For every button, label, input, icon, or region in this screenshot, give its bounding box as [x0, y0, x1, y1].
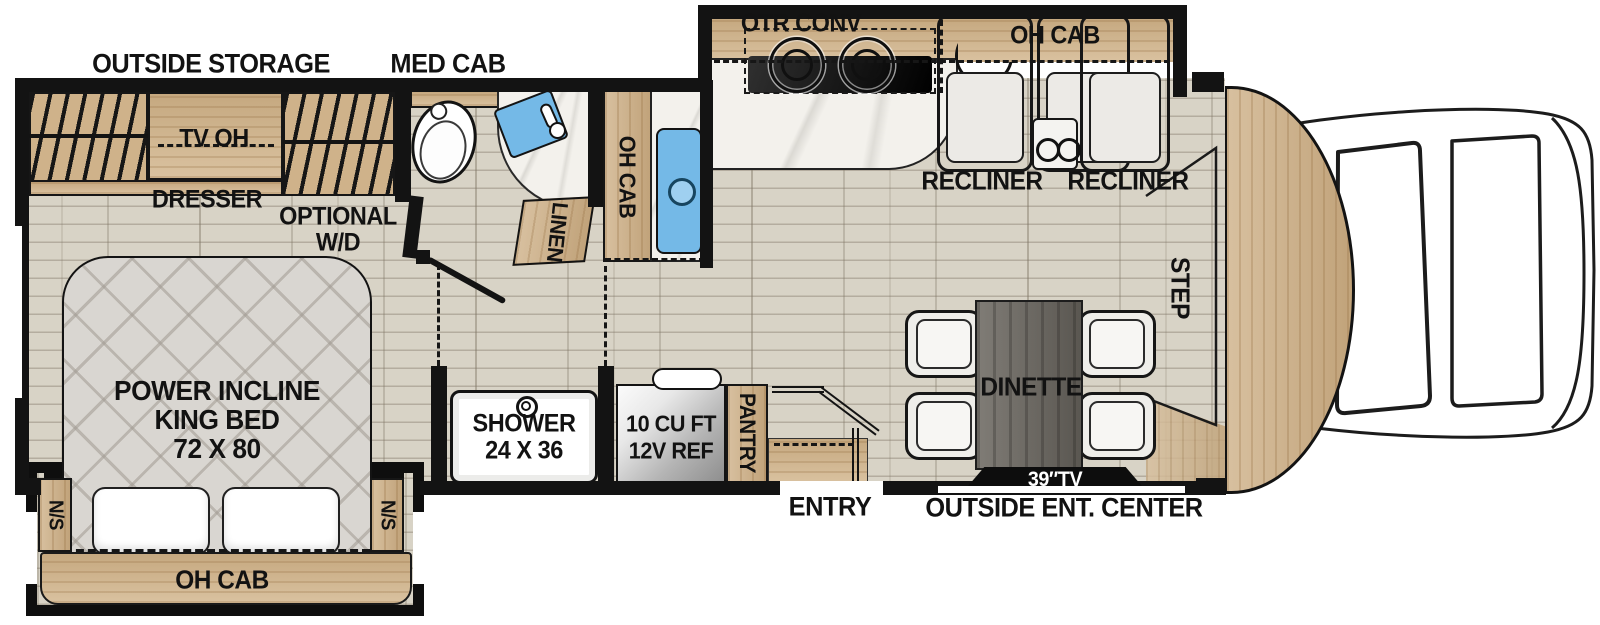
dinette-chair-3-cushion [1089, 319, 1145, 369]
wardrobe-wd-rod [283, 140, 395, 144]
label-dresser: DRESSER [152, 186, 262, 215]
label-bed-line3: 72 X 80 [173, 433, 260, 465]
wall-bottom-left-stub [15, 478, 41, 495]
dinette-chair-3 [1078, 310, 1156, 378]
dinette-chair-4-cushion [1089, 401, 1145, 451]
label-outside-storage: OUTSIDE STORAGE [92, 49, 330, 80]
windshield-right-pane [1452, 136, 1542, 406]
wall-galley-left [698, 5, 712, 92]
entry-step-dash [774, 443, 854, 446]
label-ns-right: N/S [376, 500, 399, 530]
wall-bath-left [395, 86, 411, 202]
dinette-chair-2-cushion [916, 401, 972, 451]
vanity-drain-icon [668, 178, 696, 206]
label-shower-line1: SHOWER [473, 410, 576, 439]
label-recliner-left: RECLINER [921, 166, 1042, 197]
label-wd: W/D [316, 229, 360, 258]
dinette-chair-2 [905, 392, 983, 460]
label-step: STEP [1165, 257, 1196, 319]
slide-latch-right [368, 468, 404, 478]
wardrobe-left-rod [29, 134, 148, 138]
slideout-window-left [26, 512, 37, 584]
bath-boundary-dash-right [604, 266, 607, 366]
label-oh-cab-bed: OH CAB [175, 565, 269, 596]
pillow-left [92, 487, 210, 555]
recliner-left-cushion2 [946, 72, 1024, 163]
label-entry: ENTRY [789, 492, 872, 523]
rear-window-gap [15, 226, 22, 398]
label-oh-cab-galley: OH CAB [1010, 22, 1100, 51]
label-shower-line2: 24 X 36 [485, 437, 563, 466]
dinette-chair-1-cushion [916, 319, 972, 369]
label-med-cab: MED CAB [390, 49, 505, 80]
label-tv-oh: TV OH [179, 125, 248, 154]
bath-boundary-dash-left [437, 264, 440, 366]
label-dinette: DINETTE [980, 372, 1081, 403]
burner-left-inner-icon [781, 49, 813, 81]
cupholder-right-icon [1057, 138, 1081, 162]
living-cab-dash [958, 60, 1170, 63]
label-fridge-line1: 10 CU FT [626, 411, 716, 438]
label-optional: OPTIONAL [279, 203, 397, 232]
burner-right-inner-icon [851, 49, 883, 81]
label-tv-39: 39″TV [1028, 468, 1082, 492]
entry-rail-post [852, 428, 859, 484]
galley-cab-dash [714, 60, 955, 63]
label-outside-ent-center: OUTSIDE ENT. CENTER [925, 493, 1202, 524]
dinette-chair-1 [905, 310, 983, 378]
wall-shower-left-stub [431, 366, 447, 495]
rv-floorplan: OUTSIDE STORAGE MED CAB OTR CONV OH CAB … [0, 0, 1600, 625]
fridge-handle [652, 368, 722, 390]
slideout-window-right [413, 512, 424, 584]
wall-galley-right [1173, 5, 1187, 97]
dinette-chair-4 [1078, 392, 1156, 460]
vanity-bottom-dash [605, 258, 705, 261]
label-pantry: PANTRY [734, 393, 760, 473]
recliner-right-cushion [1089, 72, 1161, 163]
wall-top [15, 78, 712, 92]
pillow-right [222, 487, 340, 555]
wall-bath-mid [588, 86, 603, 207]
label-ns-left: N/S [44, 500, 67, 530]
wardrobe-optional-wd [283, 92, 395, 196]
entry-rail-top [772, 386, 824, 393]
label-recliner-right: RECLINER [1067, 166, 1188, 197]
label-bed-line1: POWER INCLINE [114, 375, 320, 407]
label-oh-cab-bath: OH CAB [614, 136, 641, 218]
wall-shower-right-stub [598, 366, 614, 495]
bath-faucet-knob [549, 122, 566, 139]
wall-bath-galley [700, 80, 713, 268]
label-fridge-line2: 12V REF [629, 438, 713, 465]
label-bed-line2: KING BED [155, 404, 280, 436]
label-otr-conv: OTR CONV [741, 10, 861, 39]
